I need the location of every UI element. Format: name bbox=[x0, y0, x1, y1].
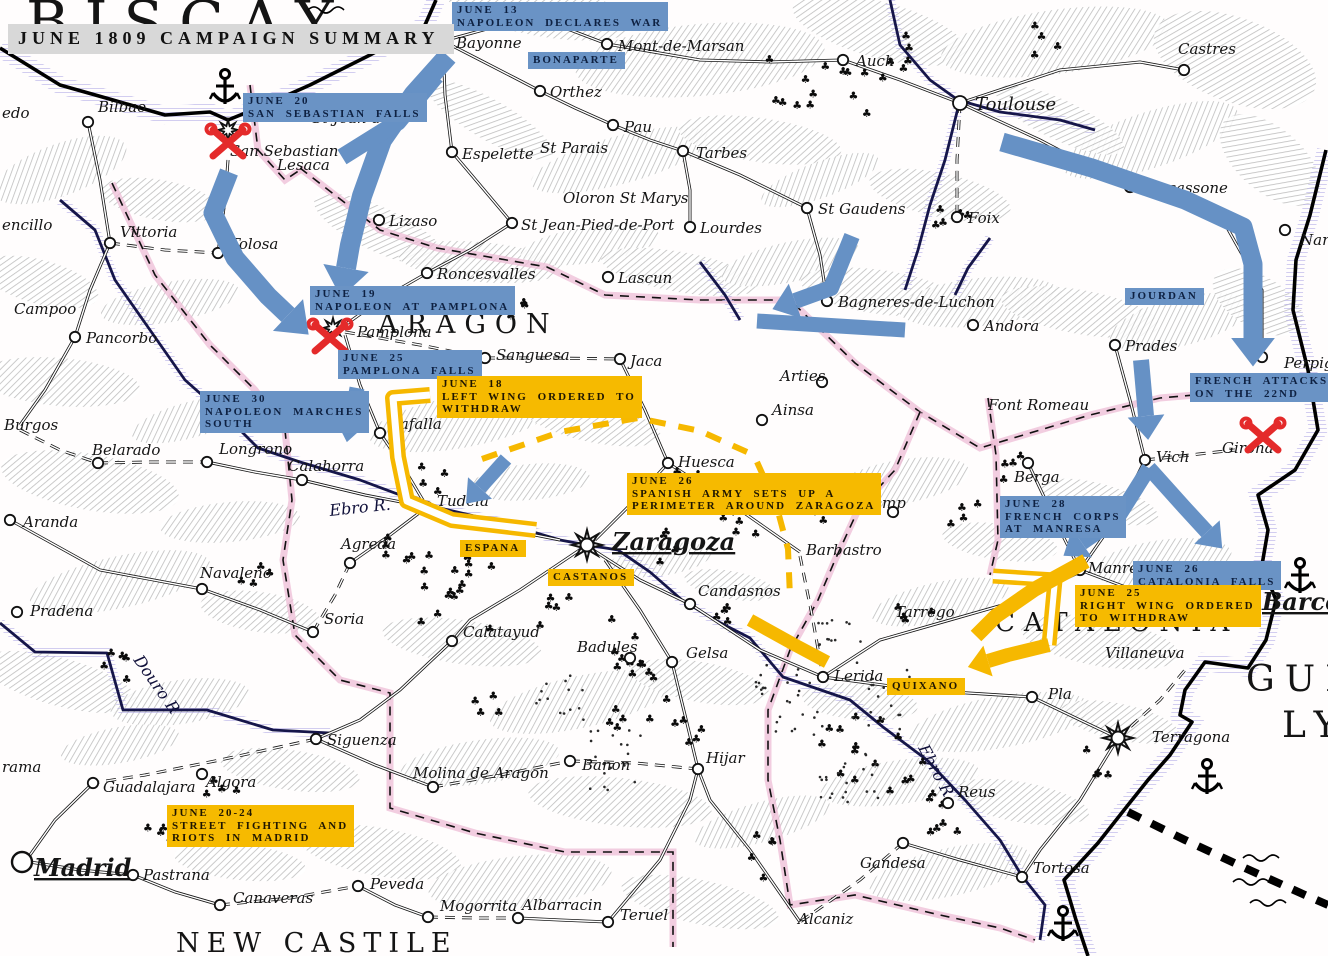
tree-icon: ♣ bbox=[899, 62, 909, 75]
tree-icon: ♣ bbox=[817, 738, 827, 751]
tree-icon: ♣ bbox=[1053, 40, 1063, 53]
town-label-badules: Badules bbox=[576, 638, 638, 656]
tree-icon: ♣ bbox=[494, 706, 504, 719]
town-label-vich: Vich bbox=[1156, 448, 1189, 466]
tree-icon: ♣ bbox=[722, 601, 732, 614]
town-marker bbox=[202, 457, 212, 467]
tree-icon: ♣ bbox=[838, 65, 848, 78]
scrub-dot bbox=[899, 714, 902, 717]
town-marker bbox=[693, 764, 703, 774]
scrub-dot bbox=[540, 690, 543, 693]
scrub-dot bbox=[581, 689, 584, 692]
movement-arrow-spanish-withdraw-route-east bbox=[757, 462, 790, 597]
tree-icon: ♣ bbox=[904, 42, 914, 55]
scrub-dot bbox=[786, 700, 789, 703]
sea-wave-icon bbox=[1243, 855, 1279, 861]
tree-icon: ♣ bbox=[433, 608, 443, 621]
map-title-box: JUNE 1809 CAMPAIGN SUMMARY bbox=[8, 24, 454, 54]
town-label-pastrana: Pastrana bbox=[142, 866, 210, 884]
sea-wave-icon bbox=[1250, 900, 1286, 906]
town-label-st-jean-pied-de-port: St Jean-Pied-de-Port bbox=[521, 216, 675, 234]
tree-icon: ♣ bbox=[675, 488, 685, 501]
scrub-dot bbox=[834, 639, 837, 642]
movement-arrow-spanish-to-lerida-head bbox=[988, 645, 1049, 661]
terrain-hatch bbox=[689, 785, 835, 860]
town-marker bbox=[615, 354, 625, 364]
town-marker bbox=[565, 756, 575, 766]
town-label-toulouse: Toulouse bbox=[975, 94, 1056, 115]
tree-icon: ♣ bbox=[416, 615, 426, 628]
scrub-dot bbox=[820, 779, 823, 782]
road-center bbox=[110, 243, 218, 253]
terrain-hatch bbox=[380, 609, 545, 675]
scrub-dot bbox=[875, 762, 878, 765]
capital-marker bbox=[12, 852, 32, 872]
tree-icon: ♣ bbox=[747, 851, 757, 864]
town-label-castres: Castres bbox=[1178, 40, 1236, 58]
town-marker bbox=[1023, 458, 1033, 468]
scrub-dot bbox=[868, 688, 871, 691]
town-marker bbox=[608, 120, 618, 130]
tree-icon: ♣ bbox=[801, 73, 811, 86]
scrub-dot bbox=[563, 712, 566, 715]
scrub-dot bbox=[831, 792, 834, 795]
town-label-huesca: Huesca bbox=[677, 453, 735, 471]
town-marker bbox=[83, 117, 93, 127]
town-label-campoo: Campoo bbox=[14, 300, 76, 318]
town-label-roncesvalles: Roncesvalles bbox=[436, 265, 536, 283]
tree-icon: ♣ bbox=[1000, 457, 1010, 470]
town-label-belarado: Belarado bbox=[91, 441, 160, 459]
movement-arrow-french-prades-to-vich bbox=[1141, 360, 1146, 416]
scrub-dot bbox=[837, 772, 840, 775]
scrub-dot bbox=[813, 716, 816, 719]
scrub-dot bbox=[797, 694, 800, 697]
town-label-orthez: Orthez bbox=[550, 83, 602, 101]
scrub-dot bbox=[813, 733, 816, 736]
tree-icon: ♣ bbox=[655, 555, 665, 568]
town-marker bbox=[507, 218, 517, 228]
town-label-pla: Pla bbox=[1047, 685, 1072, 703]
scrub-dot bbox=[765, 664, 768, 667]
scrub-dot bbox=[569, 674, 572, 677]
scrub-dot bbox=[821, 725, 824, 728]
scrub-dot bbox=[817, 622, 820, 625]
scrub-dot bbox=[639, 734, 642, 737]
town-marker bbox=[1280, 225, 1290, 235]
scrub-dot bbox=[856, 661, 859, 664]
tree-icon: ♣ bbox=[605, 716, 615, 729]
town-label-font-romeau: Font Romeau bbox=[987, 396, 1089, 414]
town-marker bbox=[480, 353, 490, 363]
town-label-jaca: Jaca bbox=[627, 352, 662, 370]
town-label-bagneres-de-luchon: Bagneres-de-Luchon bbox=[837, 293, 995, 311]
scrub-dot bbox=[590, 730, 593, 733]
town-label-aranda: Aranda bbox=[21, 513, 78, 531]
scrub-dot bbox=[825, 778, 828, 781]
scrub-dot bbox=[788, 701, 791, 704]
scrub-dot bbox=[597, 729, 600, 732]
movement-arrow-french-vich-fork-east bbox=[1149, 468, 1207, 532]
scrub-dot bbox=[808, 682, 811, 685]
scrub-dot bbox=[606, 789, 609, 792]
scrub-dot bbox=[866, 790, 869, 793]
tree-icon: ♣ bbox=[849, 89, 859, 102]
tree-icon: ♣ bbox=[424, 549, 434, 562]
town-label-candasnos: Candasnos bbox=[698, 582, 781, 600]
town-label-encillo: encillo bbox=[2, 216, 52, 234]
tree-icon: ♣ bbox=[862, 107, 872, 120]
town-marker bbox=[353, 881, 363, 891]
scrub-dot bbox=[791, 730, 794, 733]
region-label-ly: LY bbox=[1282, 705, 1328, 746]
scrub-dot bbox=[882, 686, 885, 689]
tree-icon: ♣ bbox=[1082, 744, 1092, 757]
town-label-nar: Nar bbox=[1299, 231, 1328, 249]
town-marker bbox=[513, 913, 523, 923]
town-label-banon: Banon bbox=[581, 756, 630, 774]
tree-icon: ♣ bbox=[464, 567, 474, 580]
tree-icon: ♣ bbox=[670, 717, 680, 730]
town-marker bbox=[70, 332, 80, 342]
tree-icon: ♣ bbox=[519, 296, 529, 309]
scrub-dot bbox=[882, 718, 885, 721]
scrub-dot bbox=[831, 619, 834, 622]
scrub-dot bbox=[871, 774, 874, 777]
tree-icon: ♣ bbox=[901, 29, 911, 42]
scrub-dot bbox=[851, 716, 854, 719]
scrub-dot bbox=[890, 704, 893, 707]
town-label-auch: Auch bbox=[854, 52, 895, 70]
tree-icon: ♣ bbox=[440, 467, 450, 480]
fortress-core bbox=[1112, 732, 1125, 745]
town-label-gandesa: Gandesa bbox=[860, 854, 926, 872]
town-marker bbox=[1110, 340, 1120, 350]
town-label-manresa: Manresa bbox=[1087, 559, 1155, 577]
town-label-burgos: Burgos bbox=[3, 416, 58, 434]
tree-icon: ♣ bbox=[926, 825, 936, 838]
town-marker bbox=[428, 782, 438, 792]
town-marker bbox=[953, 96, 967, 110]
town-label-bilbao: Bilbao bbox=[97, 98, 146, 116]
town-label-lizaso: Lizaso bbox=[388, 212, 437, 230]
scrub-dot bbox=[538, 698, 541, 701]
scrub-dot bbox=[633, 781, 636, 784]
arrowhead-french bbox=[323, 264, 368, 297]
town-label-villaneuva: Villaneuva bbox=[1105, 644, 1185, 662]
tree-icon: ♣ bbox=[1103, 769, 1113, 782]
road bbox=[30, 783, 93, 855]
scrub-dot bbox=[762, 687, 765, 690]
tree-icon: ♣ bbox=[712, 611, 722, 624]
town-marker bbox=[535, 86, 545, 96]
town-label-reus: Reus bbox=[957, 783, 996, 801]
arrowhead-french bbox=[1231, 338, 1275, 367]
town-label-agreda: Agreda bbox=[339, 535, 396, 553]
town-marker bbox=[968, 320, 978, 330]
tree-icon: ♣ bbox=[999, 473, 1009, 486]
scrub-dot bbox=[869, 711, 872, 714]
scrub-dot bbox=[535, 702, 538, 705]
scrub-dot bbox=[755, 685, 758, 688]
scrub-dot bbox=[582, 718, 585, 721]
scrub-dot bbox=[829, 796, 832, 799]
town-label-algora: Algora bbox=[204, 773, 256, 791]
scrub-dot bbox=[545, 682, 548, 685]
tree-icon: ♣ bbox=[824, 722, 834, 735]
scrub-dot bbox=[764, 687, 767, 690]
town-marker bbox=[423, 912, 433, 922]
scrub-dot bbox=[794, 728, 797, 731]
town-marker bbox=[1027, 692, 1037, 702]
scrub-dot bbox=[873, 790, 876, 793]
movement-arrow-french-luchon-bar bbox=[757, 321, 905, 330]
town-marker bbox=[678, 146, 688, 156]
town-label-vittoria: Vittoria bbox=[120, 223, 177, 241]
tree-icon: ♣ bbox=[792, 99, 802, 112]
coastal-boundary-dashed bbox=[1128, 812, 1328, 905]
scrub-dot bbox=[620, 743, 623, 746]
scrub-dot bbox=[848, 623, 851, 626]
town-label-prades: Prades bbox=[1124, 337, 1178, 355]
tree-icon: ♣ bbox=[662, 693, 672, 706]
scrub-dot bbox=[798, 690, 801, 693]
tree-icon: ♣ bbox=[649, 672, 659, 685]
tree-icon: ♣ bbox=[723, 615, 733, 628]
scrub-dot bbox=[846, 801, 849, 804]
tree-icon: ♣ bbox=[645, 713, 655, 726]
town-marker bbox=[308, 627, 318, 637]
town-marker bbox=[757, 415, 767, 425]
town-label-teruel: Teruel bbox=[620, 906, 668, 924]
tree-icon: ♣ bbox=[488, 690, 498, 703]
tree-icon: ♣ bbox=[444, 589, 454, 602]
tree-icon: ♣ bbox=[418, 477, 428, 490]
town-marker bbox=[297, 475, 307, 485]
scrub-dot bbox=[843, 766, 846, 769]
scrub-dot bbox=[845, 782, 848, 785]
town-marker bbox=[838, 55, 848, 65]
town-label-foix: Foix bbox=[967, 209, 1000, 227]
tree-icon: ♣ bbox=[946, 518, 956, 531]
town-marker bbox=[128, 870, 138, 880]
tree-icon: ♣ bbox=[718, 512, 728, 525]
scrub-dot bbox=[564, 680, 567, 683]
town-label-rama: rama bbox=[2, 758, 41, 776]
town-label-espelette: Espelette bbox=[461, 145, 534, 163]
town-label-calahorra: Calahorra bbox=[288, 457, 364, 475]
town-marker bbox=[447, 636, 457, 646]
scrub-dot bbox=[830, 639, 833, 642]
town-label-madrid: Madrid bbox=[33, 853, 132, 882]
town-label-zaragoza: Zaragoza bbox=[611, 527, 735, 556]
scrub-dot bbox=[779, 715, 782, 718]
town-marker bbox=[685, 599, 695, 609]
town-marker bbox=[311, 734, 321, 744]
town-label-berga: Berga bbox=[1013, 468, 1060, 486]
scrub-dot bbox=[567, 688, 570, 691]
arrowhead-french bbox=[334, 417, 368, 442]
town-label-mont-de-marsan: Mont-de-Marsan bbox=[617, 37, 744, 55]
town-marker bbox=[105, 238, 115, 248]
scrub-dot bbox=[590, 740, 593, 743]
town-marker bbox=[818, 672, 828, 682]
town-label-barbastro: Barbastro bbox=[805, 541, 882, 559]
tree-icon: ♣ bbox=[925, 792, 935, 805]
scrub-dot bbox=[844, 762, 847, 765]
tree-icon: ♣ bbox=[618, 712, 628, 725]
scrub-dot bbox=[862, 768, 865, 771]
tree-icon: ♣ bbox=[952, 825, 962, 838]
town-label-longrono: Longrono bbox=[218, 440, 292, 458]
town-label-gelsa: Gelsa bbox=[686, 644, 728, 662]
tree-icon: ♣ bbox=[820, 60, 830, 73]
tree-icon: ♣ bbox=[818, 514, 828, 527]
town-marker bbox=[215, 900, 225, 910]
tree-icon: ♣ bbox=[973, 497, 983, 510]
tree-icon: ♣ bbox=[938, 216, 948, 229]
tree-icon: ♣ bbox=[420, 581, 430, 594]
town-label-oloron-st-marys: Oloron St Marys bbox=[563, 189, 689, 207]
scrub-dot bbox=[842, 796, 845, 799]
town-label-canaveras: Canaveras bbox=[233, 889, 313, 907]
tree-icon: ♣ bbox=[768, 835, 778, 848]
tree-icon: ♣ bbox=[765, 53, 775, 66]
town-label-guadalajara: Guadalajara bbox=[103, 778, 196, 796]
tree-icon: ♣ bbox=[885, 784, 895, 797]
sea-wave-icon bbox=[1233, 879, 1269, 885]
map-canvas: ♣♣♣♣♣♣♣♣♣♣♣♣♣♣♣♣♣♣♣♣♣♣♣♣♣♣♣♣♣♣♣♣♣♣♣♣♣♣♣♣… bbox=[0, 0, 1328, 956]
town-marker bbox=[374, 215, 384, 225]
town-label-hijar: Hijar bbox=[705, 749, 745, 767]
tree-icon: ♣ bbox=[778, 96, 788, 109]
scrub-dot bbox=[559, 712, 562, 715]
scrub-dot bbox=[906, 669, 909, 672]
town-marker bbox=[1179, 65, 1189, 75]
tree-icon: ♣ bbox=[122, 673, 132, 686]
tree-icon: ♣ bbox=[143, 821, 153, 834]
town-label-perpig: Perpig bbox=[1283, 354, 1328, 372]
scrub-dot bbox=[776, 721, 779, 724]
scrub-dot bbox=[578, 707, 581, 710]
town-label-calatayud: Calatayud bbox=[463, 623, 540, 641]
town-marker bbox=[88, 778, 98, 788]
scrub-dot bbox=[761, 693, 764, 696]
river-label: Ebro R. bbox=[327, 495, 391, 520]
scrub-dot bbox=[826, 622, 829, 625]
tree-icon: ♣ bbox=[875, 714, 885, 727]
town-marker bbox=[422, 268, 432, 278]
tree-icon: ♣ bbox=[935, 203, 945, 216]
scrub-dot bbox=[797, 668, 800, 671]
terrain-hatch bbox=[198, 584, 322, 640]
town-marker bbox=[5, 515, 15, 525]
town-label-st-gaudens: St Gaudens bbox=[818, 200, 906, 218]
scrub-dot bbox=[603, 786, 606, 789]
tree-icon: ♣ bbox=[419, 565, 429, 578]
region-label-gul: GUL bbox=[1246, 659, 1328, 700]
town-label-tarbes: Tarbes bbox=[696, 144, 747, 162]
town-label-lerida: Lerida bbox=[833, 667, 883, 685]
tree-icon: ♣ bbox=[752, 829, 762, 842]
terrain-hatch bbox=[526, 769, 714, 836]
tree-icon: ♣ bbox=[957, 501, 967, 514]
town-marker bbox=[1017, 872, 1027, 882]
tree-icon: ♣ bbox=[850, 773, 860, 786]
tree-icon: ♣ bbox=[121, 652, 131, 665]
tree-icon: ♣ bbox=[893, 730, 903, 743]
tree-icon: ♣ bbox=[486, 560, 496, 573]
town-label-tremp: Tremp bbox=[856, 494, 906, 512]
tree-icon: ♣ bbox=[455, 584, 465, 597]
tree-icon: ♣ bbox=[402, 553, 412, 566]
scrub-dot bbox=[612, 734, 615, 737]
scrub-dot bbox=[859, 640, 862, 643]
town-label-arties: Arties bbox=[778, 367, 826, 385]
tree-icon: ♣ bbox=[835, 723, 845, 736]
town-label-barcel: Barcel bbox=[1261, 587, 1328, 616]
town-marker bbox=[802, 203, 812, 213]
scrub-dot bbox=[825, 776, 828, 779]
tree-icon: ♣ bbox=[476, 706, 486, 719]
tree-icon: ♣ bbox=[159, 821, 169, 834]
town-label-lascun: Lascun bbox=[617, 269, 672, 287]
town-marker bbox=[93, 458, 103, 468]
town-label-molina-de-aragon: Molina de Aragon bbox=[412, 764, 549, 782]
scrub-dot bbox=[627, 752, 630, 755]
scrub-dot bbox=[845, 621, 848, 624]
scrub-dot bbox=[755, 681, 758, 684]
town-marker bbox=[602, 39, 612, 49]
tree-icon: ♣ bbox=[1093, 767, 1103, 780]
scrub-dot bbox=[759, 674, 762, 677]
tree-icon: ♣ bbox=[851, 740, 861, 753]
port-anchor-icon bbox=[1192, 760, 1222, 795]
tree-icon: ♣ bbox=[728, 506, 738, 519]
town-marker bbox=[898, 838, 908, 848]
scrub-dot bbox=[820, 796, 823, 799]
town-label-pamplona: Pamplona bbox=[356, 323, 432, 341]
scrub-dot bbox=[569, 708, 572, 711]
town-label-andora: Andora bbox=[982, 317, 1039, 335]
town-marker bbox=[197, 584, 207, 594]
town-label-ainsa: Ainsa bbox=[770, 401, 814, 419]
tree-icon: ♣ bbox=[805, 99, 815, 112]
town-marker bbox=[943, 798, 953, 808]
scrub-dot bbox=[819, 776, 822, 779]
scrub-dot bbox=[867, 724, 870, 727]
tree-icon: ♣ bbox=[759, 872, 769, 885]
scrub-dot bbox=[816, 711, 819, 714]
tree-icon: ♣ bbox=[638, 658, 648, 671]
town-label-tarrego: Tarrego bbox=[895, 603, 955, 621]
tree-icon: ♣ bbox=[99, 659, 109, 672]
town-label-pradena: Pradena bbox=[29, 602, 93, 620]
scrub-dot bbox=[898, 728, 901, 731]
scrub-dot bbox=[628, 729, 631, 732]
town-label-peveda: Peveda bbox=[369, 875, 424, 893]
tree-icon: ♣ bbox=[1030, 49, 1040, 62]
tree-icon: ♣ bbox=[679, 714, 689, 727]
town-marker bbox=[603, 272, 613, 282]
tree-icon: ♣ bbox=[751, 528, 761, 541]
tree-icon: ♣ bbox=[823, 500, 833, 513]
town-label-navaleno: Navaleno bbox=[199, 564, 272, 582]
town-marker bbox=[952, 212, 962, 222]
scrub-dot bbox=[844, 791, 847, 794]
scrub-dot bbox=[818, 644, 821, 647]
town-label-alcaniz: Alcaniz bbox=[796, 910, 853, 928]
